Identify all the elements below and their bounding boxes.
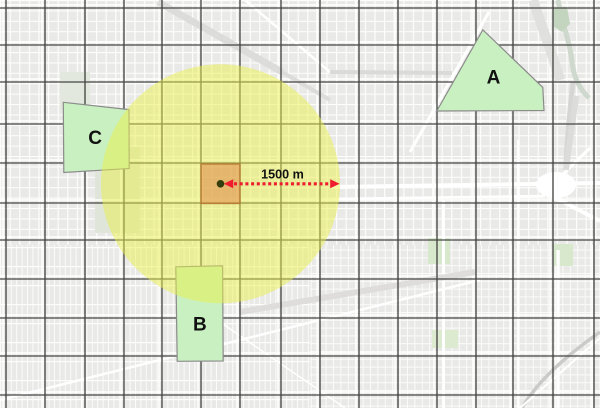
svg-text:B: B	[193, 314, 207, 335]
svg-text:1500 m: 1500 m	[261, 168, 304, 182]
svg-text:C: C	[88, 128, 102, 149]
svg-text:A: A	[487, 68, 501, 89]
